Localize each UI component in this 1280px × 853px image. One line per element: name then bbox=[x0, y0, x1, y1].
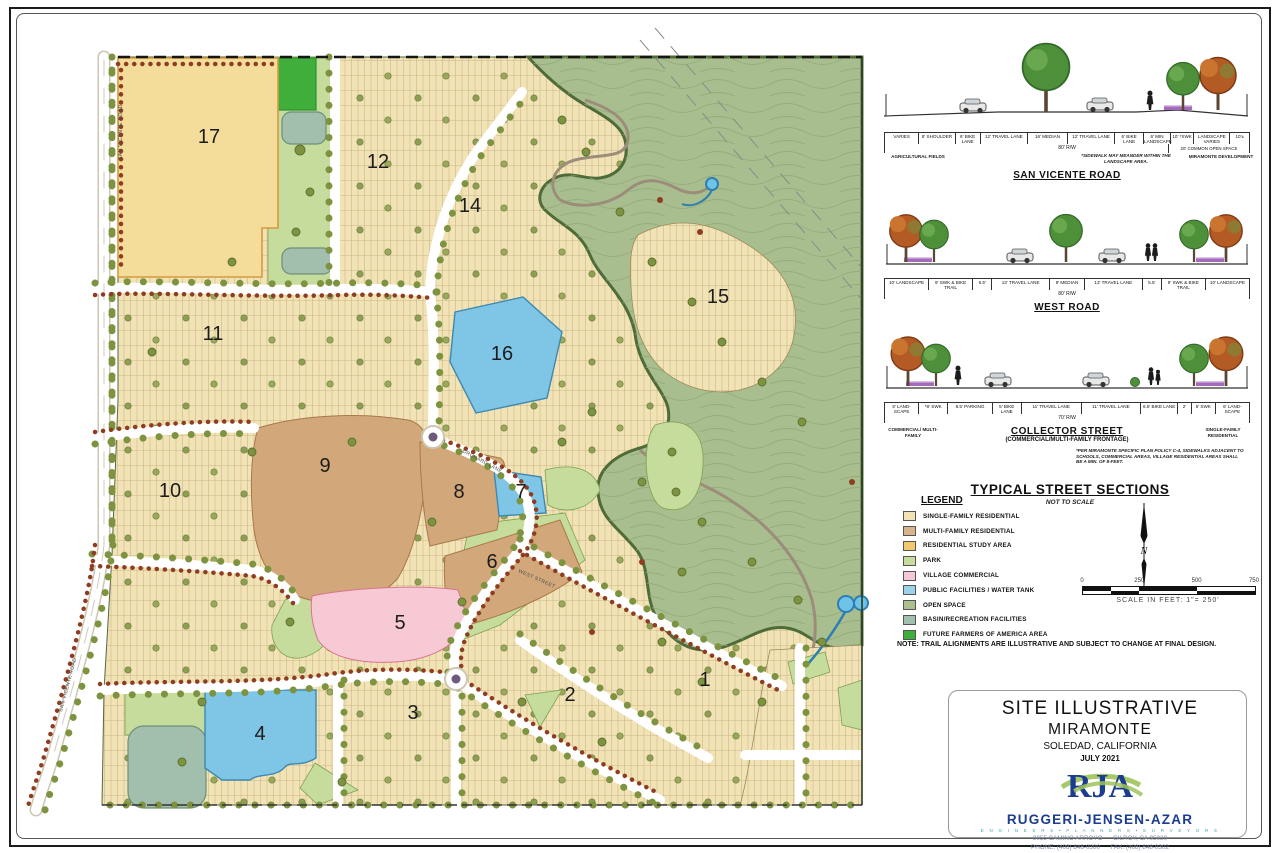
dimension-label: 6' BIKE LANE bbox=[955, 133, 980, 144]
dimension-label: 8.5' PARKING bbox=[947, 403, 991, 414]
parcel-17-study-area bbox=[118, 58, 278, 277]
san-vicente-section-drawing bbox=[878, 32, 1256, 132]
legend-items: SINGLE-FAMILY RESIDENTIALMULTI-FAMILY RE… bbox=[903, 509, 1138, 642]
dimension-label: 5.5' bbox=[1142, 279, 1161, 290]
legend-label: FUTURE FARMERS OF AMERICA AREA bbox=[923, 631, 1048, 638]
dimension-label: 9' SWK & BIKE TRAIL bbox=[1161, 279, 1205, 290]
firm-address: 8055 CAMINO ARROYO GILROY, CA 95020 PHON… bbox=[955, 835, 1245, 852]
section-name-san-vicente: SAN VICENTE ROAD bbox=[878, 170, 1256, 181]
future-farmers-area bbox=[276, 58, 316, 110]
section-name-west-road: WEST ROAD bbox=[878, 302, 1256, 313]
dimension-label: 11' TRAVEL LANE bbox=[1081, 403, 1141, 414]
parcel-label-2: 2 bbox=[564, 684, 575, 706]
parcel-label-10: 10 bbox=[159, 480, 181, 502]
parcel-label-6: 6 bbox=[486, 551, 497, 573]
san-vicente-dimension-row: VARIES8' SHOULDER6' BIKE LANE12' TRAVEL … bbox=[884, 132, 1250, 144]
scale-bar-graphic bbox=[1082, 586, 1256, 595]
parcel-label-14: 14 bbox=[459, 195, 481, 217]
dimension-label: 9' SWK & BIKE TRAIL bbox=[928, 279, 972, 290]
parcel-label-16: 16 bbox=[491, 343, 513, 365]
dimension-label: LANDSCAPE VARIES bbox=[1193, 133, 1229, 144]
parcel-label-4: 4 bbox=[254, 723, 265, 745]
dimension-label: 6' BIKE LANE bbox=[1114, 133, 1143, 144]
legend-item: PARK bbox=[903, 553, 1138, 568]
dimension-label: *8' SWK bbox=[918, 403, 947, 414]
north-arrow-n-label: N bbox=[1140, 546, 1149, 557]
legend: LEGEND SINGLE-FAMILY RESIDENTIALMULTI-FA… bbox=[903, 495, 1138, 642]
parcel-label-7: 7 bbox=[515, 481, 526, 503]
legend-swatch bbox=[903, 571, 916, 581]
san-vicente-rw-row: 80' R/W 20' COMMON OPEN SPACE bbox=[884, 144, 1250, 153]
rja-logo: RJA bbox=[1052, 765, 1148, 807]
legend-item: MULTI-FAMILY RESIDENTIAL bbox=[903, 524, 1138, 539]
legend-swatch bbox=[903, 526, 916, 536]
scale-tick-labels: 0250500750 bbox=[1082, 578, 1254, 586]
agricultural-fields-note: AGRICULTURAL FIELDS bbox=[888, 154, 948, 160]
west-road-dimension-row: 10' LANDSCAPE9' SWK & BIKE TRAIL5.5'13' … bbox=[884, 278, 1250, 290]
single-family-frontage-label: SINGLE-FAMILY RESIDENTIAL bbox=[1192, 427, 1254, 438]
scale-tick: 0 bbox=[1080, 578, 1083, 584]
collector-rw-row: 70' R/W bbox=[884, 414, 1250, 423]
west-road-section-drawing bbox=[878, 198, 1256, 278]
parcel-label-5: 5 bbox=[394, 612, 405, 634]
dimension-label: 2' bbox=[1177, 403, 1191, 414]
firm-name: RUGGERI-JENSEN-AZAR bbox=[955, 812, 1245, 827]
scale-bar: 0250500750 SCALE IN FEET: 1"= 250' bbox=[1082, 578, 1254, 604]
dimension-label: 13' TRAVEL LANE bbox=[991, 279, 1049, 290]
parcel-label-3: 3 bbox=[407, 702, 418, 724]
legend-label: PUBLIC FACILITIES / WATER TANK bbox=[923, 587, 1034, 594]
parcel-label-8: 8 bbox=[453, 481, 464, 503]
sheet-date: JULY 2021 bbox=[955, 754, 1245, 763]
dimension-label: 6' MIN LANDSCAPE bbox=[1143, 133, 1170, 144]
dimension-label: 6' LAND- SCAPE bbox=[884, 403, 918, 414]
collector-footnote: *PER MIRAMONTE SPECIFIC PLAN POLICY C-4,… bbox=[1076, 448, 1244, 465]
legend-item: FUTURE FARMERS OF AMERICA AREA bbox=[903, 627, 1138, 642]
scale-caption: SCALE IN FEET: 1"= 250' bbox=[1082, 597, 1254, 604]
legend-swatch bbox=[903, 630, 916, 640]
collector-dimension-row: 6' LAND- SCAPE*8' SWK8.5' PARKING5' BIKE… bbox=[884, 402, 1250, 414]
legend-item: RESIDENTIAL STUDY AREA bbox=[903, 539, 1138, 554]
dimension-label: 9' MEDIAN bbox=[1049, 279, 1084, 290]
legend-swatch bbox=[903, 585, 916, 595]
parcel-label-17: 17 bbox=[198, 126, 220, 148]
dimension-label: 5.5' bbox=[972, 279, 991, 290]
trail-alignments-note: NOTE: TRAIL ALIGNMENTS ARE ILLUSTRATIVE … bbox=[897, 641, 1269, 648]
legend-label: BASIN/RECREATION FACILITIES bbox=[923, 616, 1027, 623]
project-name: MIRAMONTE bbox=[955, 721, 1245, 739]
dimension-label: 11' TRAVEL LANE bbox=[1021, 403, 1081, 414]
legend-swatch bbox=[903, 615, 916, 625]
parcel-label-15: 15 bbox=[707, 286, 729, 308]
legend-swatch bbox=[903, 511, 916, 521]
dimension-label: VARIES bbox=[884, 133, 918, 144]
dimension-label: 10' *SWK bbox=[1170, 133, 1193, 144]
dimension-label: 10' LANDSCAPE bbox=[1205, 279, 1249, 290]
dimension-label: 8' SHOULDER bbox=[918, 133, 954, 144]
sidewalk-meander-note: *SIDEWALK MAY MEANDER WITHIN THE LANDSCA… bbox=[1074, 153, 1178, 164]
dimension-label: 6.5' BIKE LANE bbox=[1140, 403, 1177, 414]
dimension-label: 10' LANDSCAPE bbox=[884, 279, 928, 290]
miramonte-development-note: MIRAMONTE DEVELOPMENT bbox=[1188, 154, 1254, 160]
scale-tick: 250 bbox=[1134, 578, 1144, 584]
legend-swatch bbox=[903, 600, 916, 610]
parcel-label-11: 11 bbox=[203, 323, 224, 345]
title-block: SITE ILLUSTRATIVE MIRAMONTE SOLEDAD, CAL… bbox=[955, 698, 1245, 852]
dimension-label: 5' BIKE LANE bbox=[992, 403, 1021, 414]
legend-label: RESIDENTIAL STUDY AREA bbox=[923, 542, 1012, 549]
dimension-label: 6' LAND- SCAPE bbox=[1215, 403, 1249, 414]
parcel-label-1: 1 bbox=[699, 669, 710, 691]
west-road-rw-row: 80' R/W bbox=[884, 290, 1250, 299]
legend-label: VILLAGE COMMERCIAL bbox=[923, 572, 999, 579]
dimension-label: 12' TRAVEL LANE bbox=[1067, 133, 1114, 144]
dimension-label: 13' TRAVEL LANE bbox=[1084, 279, 1142, 290]
commercial-frontage-label: COMMERCIAL/ MULTI-FAMILY bbox=[882, 427, 944, 438]
scale-tick: 500 bbox=[1192, 578, 1202, 584]
dimension-label: 16' MEDIAN bbox=[1027, 133, 1067, 144]
sheet-title: SITE ILLUSTRATIVE bbox=[955, 698, 1245, 720]
legend-label: MULTI-FAMILY RESIDENTIAL bbox=[923, 528, 1015, 535]
legend-label: SINGLE-FAMILY RESIDENTIAL bbox=[923, 513, 1020, 520]
scale-tick: 750 bbox=[1249, 578, 1259, 584]
parcel-label-9: 9 bbox=[319, 455, 330, 477]
legend-item: SINGLE-FAMILY RESIDENTIAL bbox=[903, 509, 1138, 524]
legend-title: LEGEND bbox=[921, 495, 1138, 506]
dimension-label: 5' SWK bbox=[1191, 403, 1215, 414]
legend-item: BASIN/RECREATION FACILITIES bbox=[903, 613, 1138, 628]
legend-label: PARK bbox=[923, 557, 941, 564]
dimension-label: 12' TRAVEL LANE bbox=[980, 133, 1027, 144]
firm-tagline: E N G I N E E R S • P L A N N E R S • S … bbox=[955, 828, 1245, 833]
street-section-collector-street: 6' LAND- SCAPE*8' SWK8.5' PARKING5' BIKE… bbox=[878, 316, 1256, 460]
dimension-label: 10'± bbox=[1229, 133, 1249, 144]
street-section-west-road: 10' LANDSCAPE9' SWK & BIKE TRAIL5.5'13' … bbox=[878, 198, 1256, 313]
plan-sheet: SAN VICENTE ROADSAN VICENTE ROADORCHARD … bbox=[0, 0, 1280, 853]
collector-section-drawing bbox=[878, 316, 1256, 402]
legend-label: OPEN SPACE bbox=[923, 602, 966, 609]
street-name-label: SAN VICENTE ROAD bbox=[118, 104, 124, 160]
legend-swatch bbox=[903, 556, 916, 566]
parcel-label-12: 12 bbox=[367, 151, 389, 173]
legend-swatch bbox=[903, 541, 916, 551]
street-section-san-vicente-road: VARIES8' SHOULDER6' BIKE LANE12' TRAVEL … bbox=[878, 32, 1256, 181]
project-location: SOLEDAD, CALIFORNIA bbox=[955, 741, 1245, 752]
